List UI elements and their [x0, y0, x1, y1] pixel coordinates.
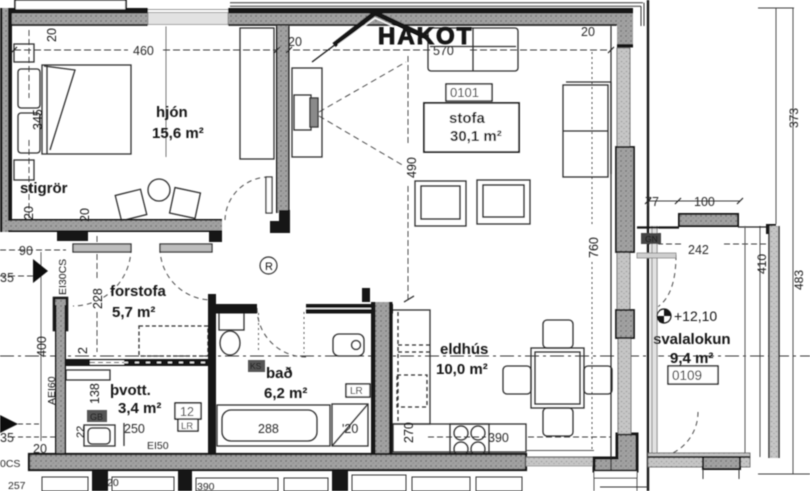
svg-text:5,7 m²: 5,7 m² [112, 304, 155, 321]
svg-text:90: 90 [19, 244, 33, 258]
svg-text:eldhús: eldhús [440, 341, 488, 358]
svg-text:HAKOT: HAKOT [378, 23, 473, 50]
svg-text:490: 490 [405, 157, 419, 178]
svg-text:AEI60: AEI60 [46, 376, 58, 405]
svg-text:15,6 m²: 15,6 m² [152, 125, 204, 142]
svg-text:2: 2 [76, 347, 90, 354]
svg-text:20: 20 [22, 206, 36, 220]
svg-text:6,2 m²: 6,2 m² [264, 385, 307, 402]
svg-text:LR: LR [350, 386, 363, 397]
svg-text:KS: KS [250, 361, 262, 371]
svg-text:228: 228 [91, 288, 105, 309]
svg-text:460: 460 [133, 44, 154, 58]
svg-text:3,4 m²: 3,4 m² [118, 400, 161, 417]
svg-text:35: 35 [0, 271, 14, 285]
svg-text:R: R [265, 261, 273, 273]
svg-text:svalalokun: svalalokun [653, 331, 731, 348]
svg-text:483: 483 [792, 270, 806, 290]
svg-text:373: 373 [787, 108, 801, 128]
svg-text:20: 20 [78, 208, 92, 222]
svg-text:'20: '20 [342, 422, 358, 436]
svg-text:570: 570 [433, 44, 454, 58]
svg-text:20: 20 [581, 25, 595, 39]
svg-text:GB: GB [90, 412, 103, 422]
svg-text:bað: bað [266, 365, 293, 382]
svg-text:35: 35 [0, 431, 14, 445]
svg-text:410: 410 [755, 254, 769, 274]
svg-text:EI50: EI50 [147, 440, 169, 452]
svg-text:390: 390 [488, 431, 509, 445]
svg-text:138: 138 [88, 383, 102, 404]
svg-text:250: 250 [124, 422, 145, 436]
svg-text:20: 20 [33, 442, 47, 456]
svg-text:12: 12 [180, 405, 194, 419]
svg-text:390: 390 [197, 481, 215, 491]
svg-text:760: 760 [587, 237, 601, 258]
svg-text:270: 270 [402, 422, 416, 443]
svg-text:345: 345 [31, 109, 45, 130]
svg-text:242: 242 [688, 243, 709, 257]
svg-text:stigrör: stigrör [20, 180, 68, 197]
svg-text:30,1 m²: 30,1 m² [450, 128, 502, 145]
svg-text:22: 22 [75, 426, 87, 438]
svg-text:0CS: 0CS [0, 458, 20, 470]
svg-text:GN: GN [645, 234, 658, 244]
svg-text:20: 20 [45, 28, 59, 42]
svg-text:forstofa: forstofa [110, 283, 166, 300]
svg-text:288: 288 [258, 422, 279, 436]
svg-text:257: 257 [8, 480, 26, 491]
svg-text:0101: 0101 [450, 85, 479, 100]
svg-text:20: 20 [107, 477, 119, 489]
svg-text:0109: 0109 [672, 368, 702, 383]
svg-text:10,0 m²: 10,0 m² [436, 361, 488, 378]
svg-text:100: 100 [694, 195, 715, 209]
svg-text:stofa: stofa [449, 110, 485, 127]
svg-text:LR: LR [181, 421, 193, 432]
svg-text:þvott.: þvott. [110, 382, 151, 399]
svg-text:EI30CS: EI30CS [57, 259, 69, 295]
svg-text:+12,10: +12,10 [674, 308, 717, 324]
svg-text:400: 400 [35, 336, 49, 357]
svg-text:9,4 m²: 9,4 m² [670, 350, 713, 367]
svg-text:hjón: hjón [156, 104, 188, 121]
svg-text:20: 20 [288, 35, 302, 49]
